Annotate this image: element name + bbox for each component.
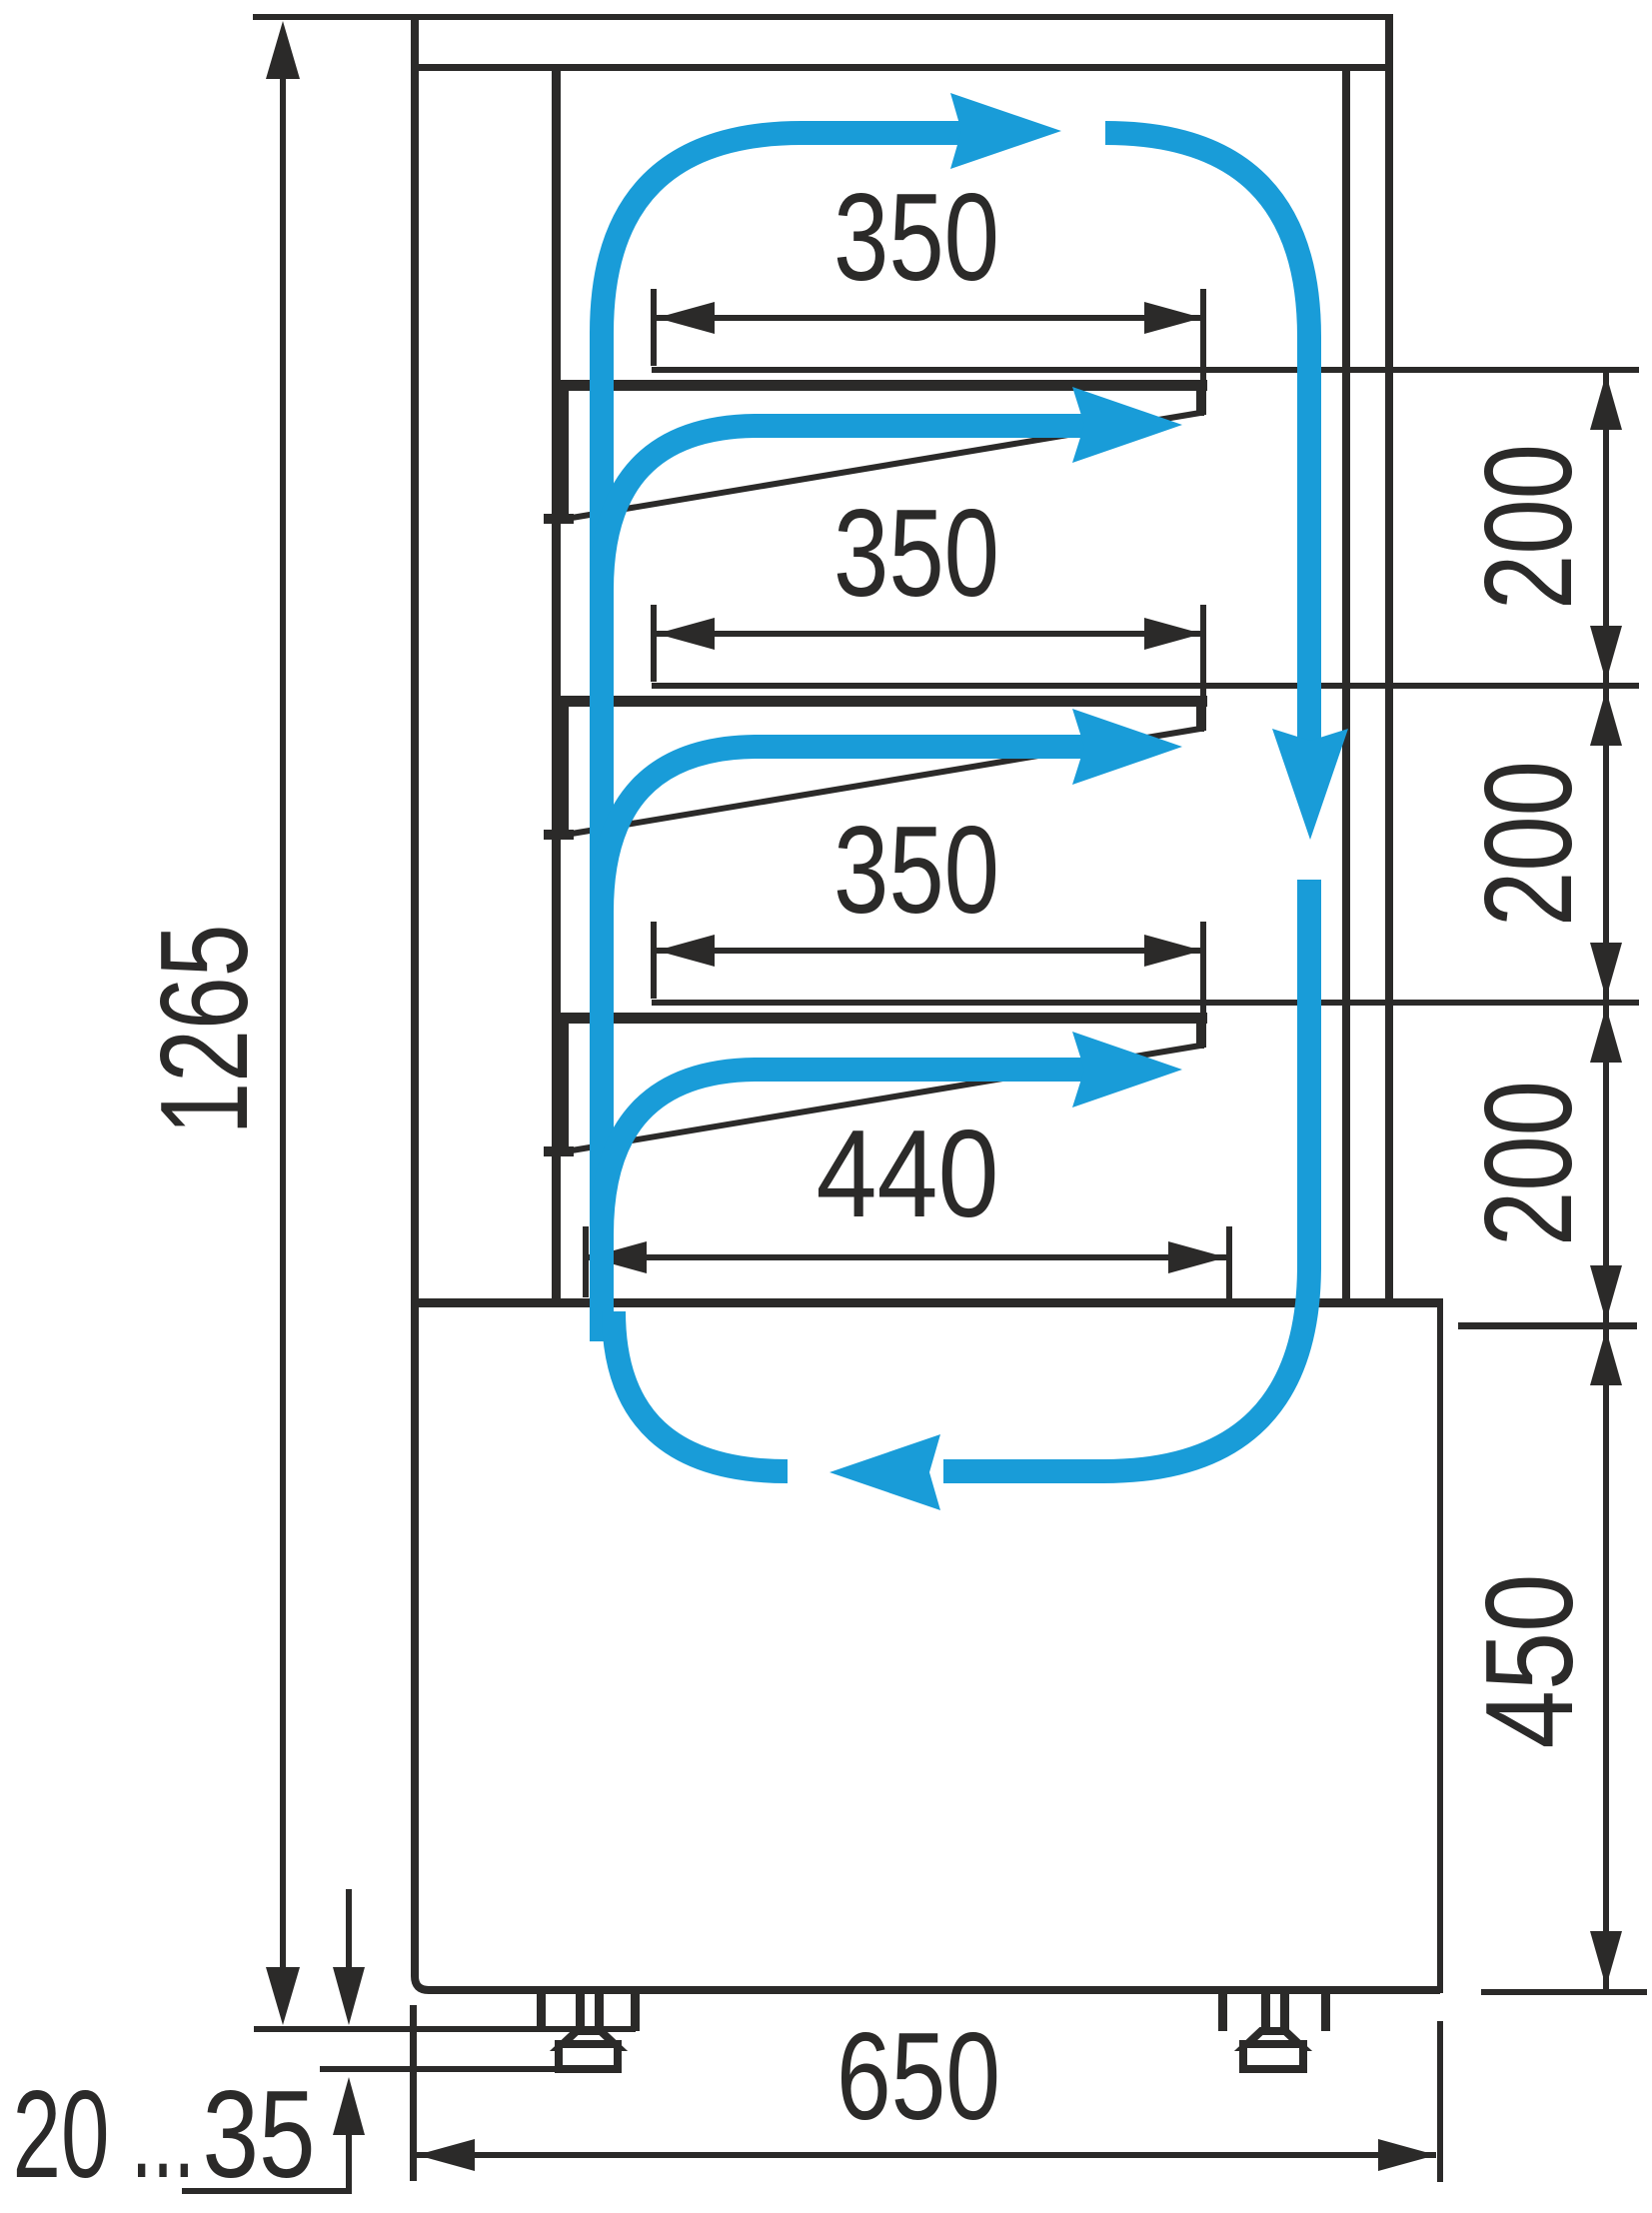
svg-text:350: 350 <box>833 169 999 307</box>
svg-text:35: 35 <box>203 2066 316 2204</box>
svg-text:350: 350 <box>833 485 999 623</box>
svg-text:20: 20 <box>13 2066 110 2204</box>
svg-text:650: 650 <box>836 2008 1000 2146</box>
svg-text:440: 440 <box>817 1106 999 1243</box>
svg-text:1265: 1265 <box>136 925 274 1135</box>
svg-text:...: ... <box>131 2066 195 2204</box>
svg-text:200: 200 <box>1460 444 1598 610</box>
svg-text:350: 350 <box>833 802 999 940</box>
svg-text:200: 200 <box>1460 761 1598 927</box>
svg-text:450: 450 <box>1461 1574 1599 1749</box>
svg-text:200: 200 <box>1460 1081 1598 1246</box>
